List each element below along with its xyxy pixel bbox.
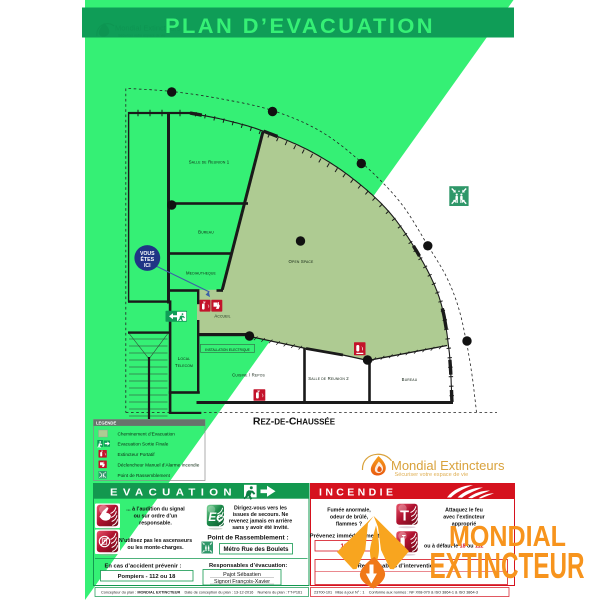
svg-text:Concepteur du plan : MONDIAL E: Concepteur du plan : MONDIAL EXTINCTEUR … [101, 591, 302, 595]
svg-text:Déclencheur Manuel d’Alarme In: Déclencheur Manuel d’Alarme Incendie [118, 462, 200, 467]
svg-text:TELECOM: TELECOM [175, 363, 193, 368]
svg-text:Evacuation Sortie Finale: Evacuation Sortie Finale [118, 442, 169, 447]
svg-text:avec l’extincteur: avec l’extincteur [443, 515, 485, 521]
svg-text:Extincteur Portatif: Extincteur Portatif [118, 452, 156, 457]
svg-text:EXTINCTEUR: EXTINCTEUR [430, 545, 585, 586]
svg-text:Métro Rue des Boulets: Métro Rue des Boulets [223, 547, 289, 553]
svg-text:Attaquez le feu: Attaquez le feu [445, 508, 483, 514]
svg-text:issues de secours. Ne: issues de secours. Ne [233, 512, 289, 518]
svg-text:OPEN SPACE: OPEN SPACE [289, 259, 314, 264]
svg-text:responsable.: responsable. [139, 521, 172, 527]
svg-text:LOCAL: LOCAL [178, 356, 190, 361]
svg-text:Point de Rassemblement: Point de Rassemblement [118, 473, 171, 478]
svg-text:Fumée anormale,: Fumée anormale, [327, 508, 371, 514]
svg-text:sans y avoir été invité.: sans y avoir été invité. [232, 525, 289, 531]
svg-text:Dirigez-vous vers les: Dirigez-vous vers les [234, 506, 287, 512]
svg-text:SALLE DE REUNION 1: SALLE DE REUNION 1 [189, 160, 230, 165]
svg-text:INCENDIE: INCENDIE [319, 487, 396, 499]
svg-text:Point de Rassemblement :: Point de Rassemblement : [207, 535, 288, 542]
svg-text:revenez jamais en arrière: revenez jamais en arrière [229, 519, 292, 525]
svg-text:EVACUATION: EVACUATION [110, 486, 237, 498]
svg-text:PLAN D’EVACUATION: PLAN D’EVACUATION [165, 14, 435, 38]
svg-text:MEDIAUTHEQUE: MEDIAUTHEQUE [186, 271, 216, 276]
svg-text:BUREAU: BUREAU [402, 377, 418, 382]
svg-text:ICI: ICI [144, 263, 151, 269]
svg-text:odeur de brûlé,: odeur de brûlé, [330, 515, 369, 521]
svg-text:CUISINE / REPOS: CUISINE / REPOS [232, 373, 265, 378]
svg-text:Cheminement d’Evacuation: Cheminement d’Evacuation [118, 431, 176, 436]
svg-text:Sécuriser votre espace de vie: Sécuriser votre espace de vie [395, 472, 469, 478]
svg-text:VOUS: VOUS [140, 251, 155, 257]
svg-text:Prévenez immédiatement: Prévenez immédiatement [310, 534, 380, 540]
svg-text:ACCUEIL: ACCUEIL [214, 314, 230, 319]
svg-text:Pompiers - 112 ou 18: Pompiers - 112 ou 18 [118, 574, 176, 580]
svg-text:Responsables d’évacuation:: Responsables d’évacuation: [209, 563, 287, 569]
svg-text:LEGENDE: LEGENDE [96, 421, 116, 426]
svg-text:Mondial Extincteurs: Mondial Extincteurs [391, 458, 505, 473]
svg-text:N’utilisez pas les ascenseurs: N’utilisez pas les ascenseurs [119, 538, 192, 544]
svg-text:SALLE DE REUNION 2: SALLE DE REUNION 2 [308, 376, 349, 381]
svg-text:Sécuriser votre espace de vie: Sécuriser votre espace de vie [118, 34, 165, 38]
svg-text:BUREAU: BUREAU [198, 230, 214, 235]
svg-text:T: T [400, 509, 409, 525]
svg-text:... à l’audition du signal: ... à l’audition du signal [126, 507, 185, 513]
svg-text:23700-101 Mise à jour N° : 1: 23700-101 Mise à jour N° : 1 Conforme au… [314, 591, 478, 595]
svg-text:flammes ?: flammes ? [336, 522, 362, 528]
svg-text:En cas d’accident prévenir :: En cas d’accident prévenir : [105, 564, 182, 570]
svg-text:REZ-DE-CHAUSSÉE: REZ-DE-CHAUSSÉE [253, 416, 336, 428]
svg-text:INSTALLATION ELECTRIQUE: INSTALLATION ELECTRIQUE [205, 347, 249, 352]
svg-text:ÊTES: ÊTES [141, 255, 155, 263]
svg-text:ou les monte-charges.: ou les monte-charges. [127, 545, 184, 551]
svg-text:ou sur ordre d’un: ou sur ordre d’un [134, 514, 178, 520]
